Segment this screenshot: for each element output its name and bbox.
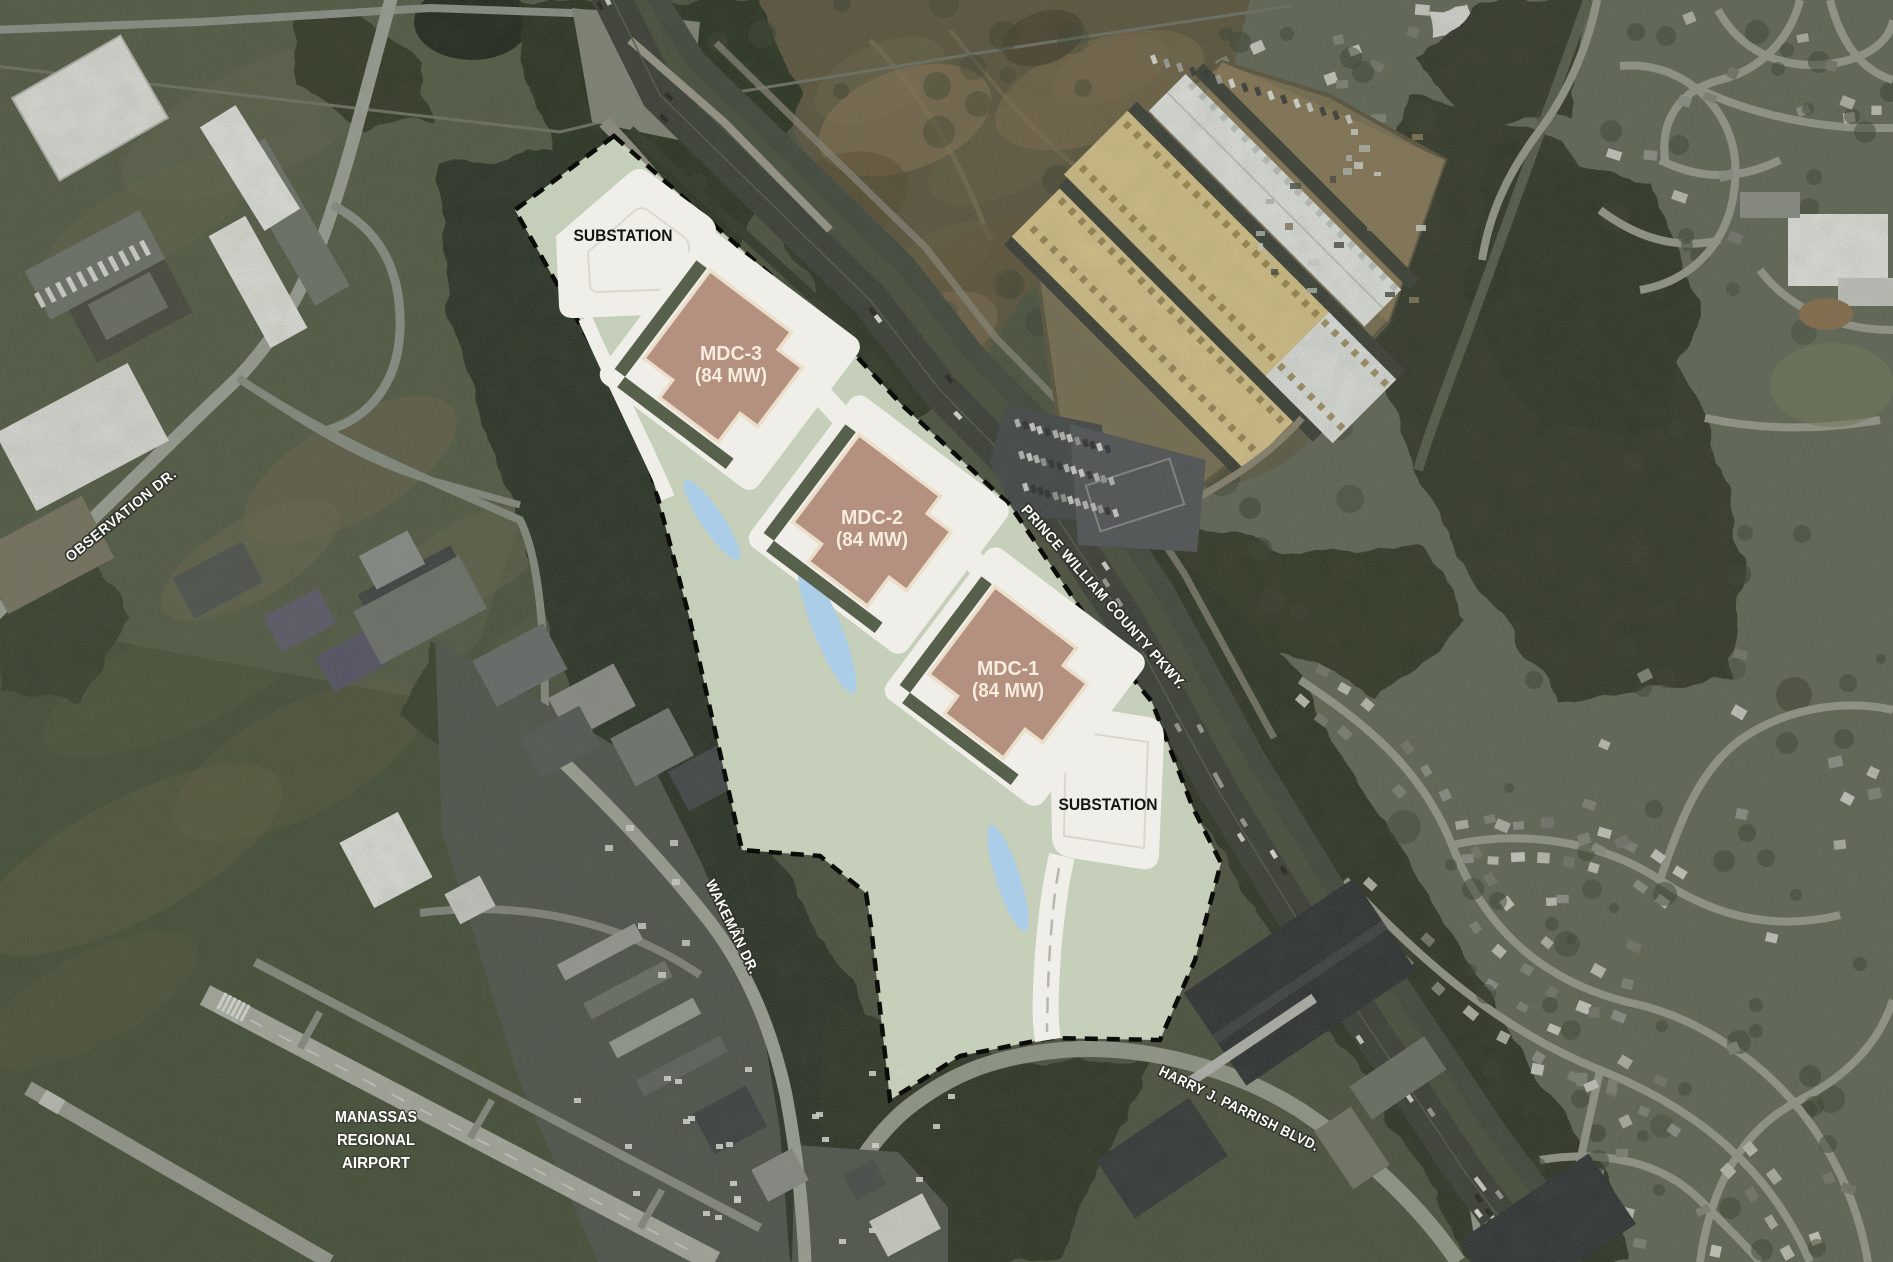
- svg-text:REGIONAL: REGIONAL: [337, 1132, 415, 1149]
- svg-text:MDC-2: MDC-2: [841, 507, 903, 529]
- svg-text:(84 MW): (84 MW): [972, 680, 1044, 702]
- svg-text:(84 MW): (84 MW): [695, 365, 767, 387]
- svg-text:AIRPORT: AIRPORT: [342, 1155, 411, 1172]
- svg-text:MDC-1: MDC-1: [977, 658, 1039, 680]
- svg-text:(84 MW): (84 MW): [836, 529, 908, 551]
- svg-text:SUBSTATION: SUBSTATION: [1059, 796, 1158, 814]
- svg-text:MANASSAS: MANASSAS: [335, 1109, 417, 1126]
- svg-text:SUBSTATION: SUBSTATION: [574, 227, 673, 245]
- svg-text:MDC-3: MDC-3: [700, 343, 762, 365]
